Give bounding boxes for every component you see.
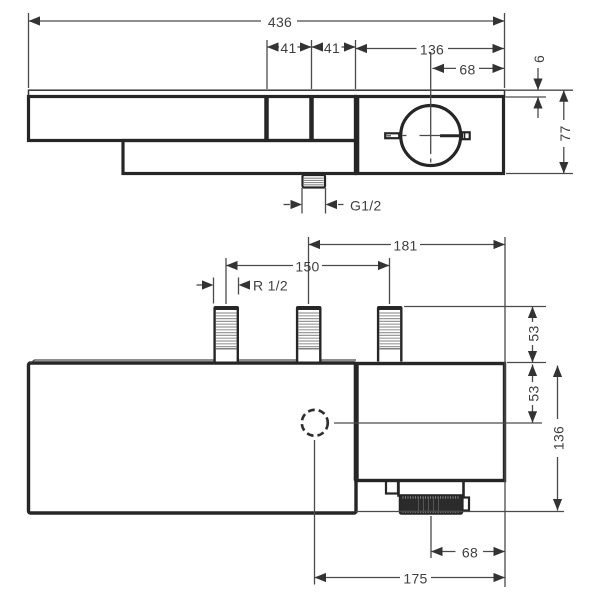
svg-text:53: 53	[526, 325, 542, 341]
svg-text:G1/2: G1/2	[350, 198, 382, 214]
svg-text:436: 436	[268, 14, 292, 30]
svg-text:41: 41	[280, 40, 296, 56]
svg-text:150: 150	[295, 259, 319, 275]
svg-text:181: 181	[393, 238, 417, 254]
svg-text:136: 136	[551, 426, 567, 450]
svg-text:68: 68	[462, 545, 478, 561]
svg-text:6: 6	[531, 55, 547, 63]
svg-text:77: 77	[557, 125, 573, 141]
svg-text:R 1/2: R 1/2	[253, 278, 288, 294]
svg-text:68: 68	[459, 62, 475, 78]
svg-text:53: 53	[526, 385, 542, 401]
svg-text:41: 41	[324, 40, 340, 56]
svg-text:175: 175	[403, 571, 427, 587]
svg-text:136: 136	[420, 42, 444, 58]
